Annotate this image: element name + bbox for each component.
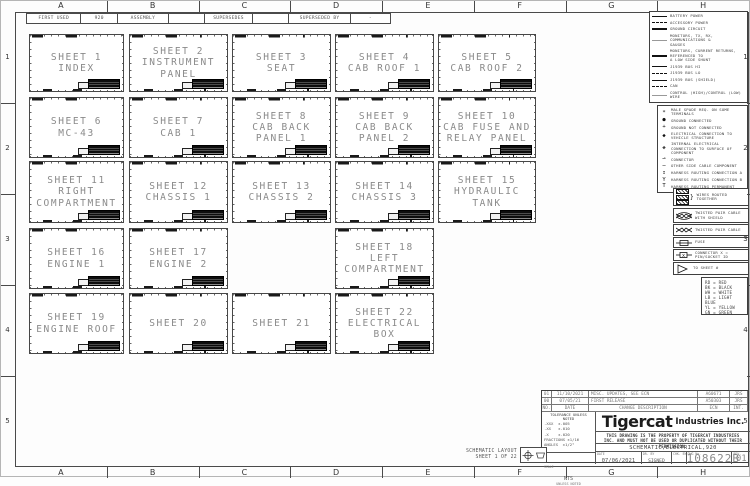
sheet-mini-titleblock	[398, 210, 430, 220]
sheet-mini-titleblock	[398, 276, 430, 286]
grid-column-label: A	[15, 1, 107, 11]
legend-line-label: MONITORS, TX, RX, COMMUNICATIONS &GAUGES	[670, 34, 745, 47]
sheet-box: SHEET 2INSTRUMENTPANEL	[129, 34, 228, 92]
svg-text:x: x	[682, 253, 685, 259]
revision-cell: A50303	[698, 398, 730, 405]
sheet-subtitle: COMPARTMENT	[36, 198, 117, 209]
grid-column-label: E	[382, 1, 474, 11]
sheet-title: SHEET 15	[458, 175, 517, 186]
line-sample-solid	[652, 16, 667, 17]
line-sample-dash	[652, 73, 667, 74]
sheet-mini-titleblock	[88, 79, 120, 89]
legend-line-label: ACCESSORY POWER	[670, 21, 708, 25]
frame-tick	[566, 467, 567, 478]
sheet-box: SHEET 10CAB FUSE ANDRELAY PANEL	[438, 97, 536, 158]
legend-symbol-label: INTERNAL ELECTRICAL CONNECTION TO SURFAC…	[671, 142, 745, 155]
revision-cell: 01	[542, 391, 552, 398]
sheet-box: SHEET 13CHASSIS 2	[232, 161, 331, 223]
spade-terminal-icon: ∗	[660, 110, 668, 116]
legend-box-tosheet: TO SHEET #	[673, 262, 749, 275]
legend-symbol-row: ⊸CONNECTOR	[660, 157, 745, 163]
sheet-subtitle: RIGHT	[58, 186, 95, 197]
frame-tick	[1, 376, 15, 377]
frame-tick	[1, 285, 15, 286]
sheet-title: SHEET 2	[153, 46, 204, 57]
revision-cell: 00	[542, 398, 552, 405]
routed-icon: }	[676, 189, 694, 206]
sheet-subtitle: PANEL 2	[359, 133, 410, 144]
legend-symbols: ∗MALE SPADE REQ. ON SOME TERMINALS●GROUN…	[657, 105, 748, 193]
property-note: THIS DRAWING IS THE PROPERTY OF TIGERCAT…	[596, 432, 750, 444]
legend-line-types: BATTERY POWERACCESSORY POWERGROUND CIRCU…	[649, 11, 748, 103]
frame-tick	[382, 1, 383, 12]
line-sample-solid	[652, 66, 667, 67]
first-used-cell: -	[351, 14, 390, 23]
line-sample-thin	[652, 40, 667, 41]
sheet-mini-titleblock	[295, 210, 327, 220]
dwg-number: 108622B	[687, 453, 732, 464]
legend-symbol-label: GROUND NOT CONNECTED	[671, 126, 722, 130]
third-angle-projection-icon	[520, 447, 547, 463]
sheet-subtitle: CAB ROOF 1	[348, 63, 421, 74]
connector-icon: ⊸	[660, 157, 668, 163]
sheet-mini-titleblock	[192, 276, 224, 286]
legend-line-label: J1939 BUS (SHIELD)	[670, 78, 716, 82]
frame-tick	[382, 467, 383, 478]
legend-box-label: TWISTED PAIR CABLE	[695, 228, 741, 232]
sheet-mini-titleblock	[88, 341, 120, 351]
first-used-bar: FIRST USED920ASSEMBLYSUPERSEDESSUPERSEDE…	[26, 13, 391, 24]
revision-cell: 11/10/2021	[552, 391, 589, 398]
sheet-subtitle: RELAY PANEL	[447, 133, 528, 144]
revision-cell: JRS	[730, 391, 748, 398]
sheet-mini-titleblock	[88, 210, 120, 220]
frame-tick	[199, 1, 200, 12]
scale-note: UNLESS NOTED	[544, 482, 593, 486]
sheet-subtitle: CHASSIS 2	[249, 192, 315, 203]
grid-column-label: F	[474, 1, 566, 11]
legend-line-row: MONITORS, TX, RX, COMMUNICATIONS &GAUGES	[652, 34, 745, 47]
sheet-box: SHEET 6MC-43	[29, 97, 124, 158]
sheet-subtitle: LEFT	[370, 253, 399, 264]
sheet-title: SHEET 16	[47, 247, 106, 258]
sheet-subtitle: MC-43	[58, 128, 95, 139]
line-sample-thin	[652, 95, 667, 96]
sheet-title: SHEET 1	[51, 52, 102, 63]
sheet-subtitle: CAB ROOF 2	[450, 63, 523, 74]
revision-cell: A60671	[698, 391, 730, 398]
revision-cell: MISC. UPDATES, SEE ECN	[589, 391, 698, 398]
legend-line-row: J1939 BUS (SHIELD)	[652, 78, 745, 82]
legend-box-routed: }WIRES ROUTED TOGETHER	[673, 188, 749, 206]
sheet-box: SHEET 19ENGINE ROOF	[29, 293, 124, 354]
drawn-value: SIGNED	[642, 459, 671, 464]
harness-routing-a-icon: ↧	[660, 171, 668, 177]
legend-symbol-label: HARNESS ROUTING CONNECTION B	[671, 178, 742, 182]
sheet-box: SHEET 7CAB 1	[129, 97, 228, 158]
grid-column-label: G	[566, 1, 658, 11]
sheet-title: SHEET 20	[149, 318, 208, 329]
revision-cell: INT.	[730, 405, 748, 412]
legend-line-row: MONITORS, CURRENT RETURNS, REFERENCED TO…	[652, 49, 745, 62]
dwg-number-field: DWG No. 108622B	[687, 452, 733, 464]
legend-line-label: J1939 BUS LO	[670, 71, 701, 75]
grid-column-label: C	[199, 1, 291, 11]
sheet-box: SHEET 20	[129, 293, 228, 354]
sheet-footer-label: SCHEMATIC LAYOUT SHEET 1 OF 22	[451, 449, 517, 461]
first-used-cell	[253, 14, 290, 23]
legend-line-row: BATTERY POWER	[652, 14, 745, 18]
legend-line-label: CAN	[670, 84, 678, 88]
sheet-mini-titleblock	[500, 145, 532, 155]
frame-tick	[290, 1, 291, 12]
sheet-box: SHEET 17ENGINE 2	[129, 228, 228, 289]
sheet-title: SHEET 11	[47, 175, 106, 186]
legend-line-label: GROUND CIRCUIT	[670, 27, 706, 31]
sheet-box: SHEET 18LEFTCOMPARTMENT	[335, 228, 434, 289]
sheet-title: SHEET 12	[149, 181, 208, 192]
sheet-subtitle: INSTRUMENT	[142, 57, 215, 68]
sheet-title: SHEET 14	[355, 181, 414, 192]
sheet-box: SHEET 1INDEX	[29, 34, 124, 92]
grid-row-label: 2	[4, 144, 11, 153]
legend-symbol-label: CONNECTOR	[671, 158, 694, 162]
wire-color-item: LB = LIGHT BLUE	[705, 295, 744, 305]
sheet-box: SHEET 9CAB BACKPANEL 2	[335, 97, 434, 158]
frame-tick	[566, 1, 567, 12]
frame-tick	[107, 467, 108, 478]
legend-box-twisted-shield: TWISTED PAIR CABLE WITH SHIELD	[673, 208, 749, 223]
frame-tick	[1, 103, 15, 104]
revision-cell: CHANGE DESCRIPTION	[589, 405, 698, 412]
legend-symbol-label: GROUND CONNECTED	[671, 119, 712, 123]
first-used-cell	[169, 14, 206, 23]
rev-field: REV. 01	[732, 452, 750, 464]
first-used-cell: SUPERSEDES	[205, 14, 252, 23]
sheet-subtitle: COMPARTMENT	[344, 264, 425, 275]
sheet-of-label: SHEET 1 OF 22	[451, 455, 517, 461]
line-sample-thick	[652, 28, 667, 30]
scale-block: SCALE NTS UNLESS NOTED	[542, 453, 596, 464]
company-logo: Tigercat Industries Inc.	[596, 412, 750, 432]
legend-box-label: TO SHEET #	[693, 266, 718, 270]
sheet-box: SHEET 11RIGHTCOMPARTMENT	[29, 161, 124, 223]
legend-line-row: J1939 BUS LO	[652, 71, 745, 75]
frame-tick	[107, 1, 108, 12]
frame-tick	[657, 467, 658, 478]
harness-routing-perm-icon: T	[660, 184, 668, 190]
other-side-cable-icon: ⋯	[660, 164, 668, 170]
revision-cell: 07/05/21	[552, 398, 589, 405]
fuse-icon	[676, 239, 692, 247]
sheet-title: SHEET 19	[47, 312, 106, 323]
sheet-subtitle: CHASSIS 1	[146, 192, 212, 203]
sheet-subtitle: PANEL 1	[256, 133, 307, 144]
legend-line-row: CONTROL (HIGH)/CONTROL (LOW) WIRE	[652, 91, 745, 100]
sheet-title: SHEET 17	[149, 247, 208, 258]
company-name: Tigercat	[602, 412, 673, 431]
schematic-index-page: { "header_bar": { "cells": ["FIRST USED"…	[0, 0, 750, 477]
frame-tick	[474, 1, 475, 12]
tolerance-row: ANGLES ±1/2°	[544, 442, 593, 447]
wire-color-item: GN = GREEN	[705, 310, 744, 315]
legend-symbol-row: ◈INTERNAL ELECTRICAL CONNECTION TO SURFA…	[660, 142, 745, 155]
tolerance-block: TOLERANCE UNLESS NOTED .XXX ±.005.XX ±.0…	[542, 412, 596, 453]
frame-tick	[1, 194, 15, 195]
twisted-shield-icon	[676, 212, 692, 220]
legend-symbol-row: ◆ELECTRICAL CONNECTION TO VEHICLE STRUCT…	[660, 132, 745, 141]
date-value: 07/06/2021	[596, 458, 641, 464]
legend-symbol-label: OTHER SIDE CABLE COMPONENT	[671, 164, 737, 168]
connector-icon: x	[676, 251, 692, 259]
sheet-box: SHEET 3SEAT	[232, 34, 331, 92]
grid-column-label: B	[107, 1, 199, 11]
sheet-mini-titleblock	[192, 79, 224, 89]
sheet-title: SHEET 6	[51, 116, 102, 127]
legend-symbol-row: ●GROUND CONNECTED	[660, 118, 745, 124]
sheet-title: SHEET 5	[461, 52, 512, 63]
sheet-mini-titleblock	[192, 145, 224, 155]
drawn-field: DR. BY SIGNED	[642, 452, 672, 464]
sheet-subtitle: CAB FUSE AND	[443, 122, 531, 133]
grid-column-label: H	[657, 1, 749, 11]
sheet-box: SHEET 8CAB BACKPANEL 1	[232, 97, 331, 158]
legend-box-label: WIRES ROUTED TOGETHER	[697, 193, 746, 202]
revision-cell: ECN	[698, 405, 730, 412]
tosheet-icon	[676, 264, 690, 274]
sheet-subtitle: ENGINE 1	[47, 259, 106, 270]
legend-line-label: J1939 BUS HI	[670, 65, 701, 69]
legend-box-label: TWISTED PAIR CABLE WITH SHIELD	[695, 211, 746, 220]
legend-wire-colors: RD = REDBK = BLACKWH = WHITELB = LIGHT B…	[701, 277, 748, 315]
sheet-title: SHEET 9	[359, 111, 410, 122]
first-used-cell: ASSEMBLY	[118, 14, 169, 23]
harness-routing-b-icon: Y	[660, 178, 668, 184]
grid-row-label: 4	[742, 326, 749, 335]
sheet-subtitle: HYDRAULIC	[454, 186, 520, 197]
grid-row-label: 4	[4, 326, 11, 335]
line-sample-dash	[652, 86, 667, 87]
grid-row-label: 1	[4, 53, 11, 62]
sheet-mini-titleblock	[192, 210, 224, 220]
drawing-title: SCHEMATIC,ELECTRICAL,920	[596, 444, 750, 452]
rev-number: 01	[732, 454, 750, 464]
grid-row-label: 3	[742, 235, 749, 244]
legend-line-row: J1939 BUS HI	[652, 65, 745, 69]
grid-row-label: 2	[742, 144, 749, 153]
sheet-box: SHEET 5CAB ROOF 2	[438, 34, 536, 92]
sheet-subtitle: ENGINE 2	[149, 259, 208, 270]
grid-row-label: 3	[4, 235, 11, 244]
sheet-subtitle: TANK	[472, 198, 501, 209]
grid-row-label: 5	[742, 417, 749, 426]
grid-row-label: 5	[4, 417, 11, 426]
grid-column-label: D	[290, 1, 382, 11]
legend-symbol-row: ∗MALE SPADE REQ. ON SOME TERMINALS	[660, 108, 745, 117]
company-suffix: Industries Inc.	[675, 417, 744, 427]
sheet-mini-titleblock	[295, 145, 327, 155]
title-block: 0111/10/2021MISC. UPDATES, SEE ECNA60671…	[541, 390, 749, 463]
sheet-mini-titleblock	[398, 341, 430, 351]
first-used-cell: 920	[81, 14, 118, 23]
revision-table: 0111/10/2021MISC. UPDATES, SEE ECNA60671…	[542, 391, 748, 412]
sheet-title: SHEET 3	[256, 52, 307, 63]
first-used-cell: FIRST USED	[27, 14, 81, 23]
sheet-box: SHEET 14CHASSIS 3	[335, 161, 434, 223]
revision-cell: FIRST RELEASE	[589, 398, 698, 405]
legend-box-connector: xCONNECTOR X = PIN/SOCKET ID	[673, 249, 749, 261]
legend-line-label: BATTERY POWER	[670, 14, 703, 18]
legend-box-label: CONNECTOR X = PIN/SOCKET ID	[695, 251, 746, 260]
line-sample-dash	[652, 22, 667, 23]
legend-line-row: GROUND CIRCUIT	[652, 27, 745, 31]
sheet-mini-titleblock	[295, 341, 327, 351]
sheet-mini-titleblock	[88, 276, 120, 286]
legend-symbol-row: ⋯OTHER SIDE CABLE COMPONENT	[660, 164, 745, 170]
sheet-subtitle: CAB BACK	[252, 122, 311, 133]
title-fields: DATE 07/06/2021 DR. BY SIGNED CHK. BY DW…	[596, 452, 750, 464]
sheet-mini-titleblock	[398, 79, 430, 89]
legend-box-twisted: TWISTED PAIR CABLE	[673, 224, 749, 236]
sheet-subtitle: CHASSIS 3	[352, 192, 418, 203]
revision-cell: DATE	[552, 405, 589, 412]
sheet-subtitle: CAB BACK	[355, 122, 414, 133]
ground-connected-icon: ●	[660, 118, 668, 124]
legend-symbol-row: +GROUND NOT CONNECTED	[660, 125, 745, 131]
line-sample-thick	[652, 55, 667, 57]
sheet-box: SHEET 21	[232, 293, 331, 354]
legend-line-label: MONITORS, CURRENT RETURNS, REFERENCED TO…	[670, 49, 745, 62]
legend-line-label: CONTROL (HIGH)/CONTROL (LOW) WIRE	[670, 91, 745, 100]
sheet-title: SHEET 7	[153, 116, 204, 127]
sheet-title: SHEET 8	[256, 111, 307, 122]
line-sample-solid	[652, 80, 667, 81]
first-used-cell: SUPERSEDED BY	[289, 14, 351, 23]
sheet-subtitle: SEAT	[267, 63, 296, 74]
legend-line-row: CAN	[652, 84, 745, 88]
sheet-mini-titleblock	[192, 341, 224, 351]
sheet-subtitle: CAB 1	[160, 128, 197, 139]
sheet-subtitle: ENGINE ROOF	[36, 324, 117, 335]
sheet-mini-titleblock	[500, 79, 532, 89]
sheet-subtitle: ELECTRICAL	[348, 318, 421, 329]
twisted-icon	[676, 226, 692, 234]
sheet-mini-titleblock	[88, 145, 120, 155]
frame-tick	[657, 1, 658, 12]
checked-field: CHK. BY	[672, 452, 687, 464]
sheet-box: SHEET 4CAB ROOF 1	[335, 34, 434, 92]
sheet-box: SHEET 16ENGINE 1	[29, 228, 124, 289]
frame-tick	[290, 467, 291, 478]
legend-symbol-label: HARNESS ROUTING CONNECTION A	[671, 171, 742, 175]
legend-line-row: ACCESSORY POWER	[652, 21, 745, 25]
sheet-subtitle: INDEX	[58, 63, 95, 74]
ground-not-connected-icon: +	[660, 125, 668, 131]
frame-tick	[474, 467, 475, 478]
sheet-title: SHEET 10	[458, 111, 517, 122]
sheet-mini-titleblock	[398, 145, 430, 155]
legend-box-fuse: FUSE	[673, 237, 749, 248]
revision-cell: NO.	[542, 405, 552, 412]
sheet-subtitle: BOX	[374, 329, 396, 340]
revision-cell: JRS	[730, 398, 748, 405]
sheet-title: SHEET 13	[252, 181, 311, 192]
legend-symbol-label: ELECTRICAL CONNECTION TO VEHICLE STRUCTU…	[671, 132, 745, 141]
legend-symbol-label: MALE SPADE REQ. ON SOME TERMINALS	[671, 108, 745, 117]
legend-symbol-row: ↧HARNESS ROUTING CONNECTION A	[660, 171, 745, 177]
sheet-title: SHEET 21	[252, 318, 311, 329]
legend-symbol-row: YHARNESS ROUTING CONNECTION B	[660, 178, 745, 184]
sheet-box: SHEET 15HYDRAULICTANK	[438, 161, 536, 223]
grid-row-label: 1	[742, 53, 749, 62]
tolerance-header: TOLERANCE UNLESS NOTED	[544, 413, 593, 421]
legend-box-label: FUSE	[695, 240, 705, 244]
component-connection-icon: ◈	[660, 146, 668, 152]
sheet-box: SHEET 12CHASSIS 1	[129, 161, 228, 223]
sheet-mini-titleblock	[500, 210, 532, 220]
sheet-title: SHEET 18	[355, 242, 414, 253]
frame-tick	[199, 467, 200, 478]
sheet-box: SHEET 22ELECTRICALBOX	[335, 293, 434, 354]
structure-connection-icon: ◆	[660, 134, 668, 140]
sheet-title: SHEET 4	[359, 52, 410, 63]
sheet-title: SHEET 22	[355, 307, 414, 318]
sheet-mini-titleblock	[295, 79, 327, 89]
date-field: DATE 07/06/2021	[596, 452, 642, 464]
